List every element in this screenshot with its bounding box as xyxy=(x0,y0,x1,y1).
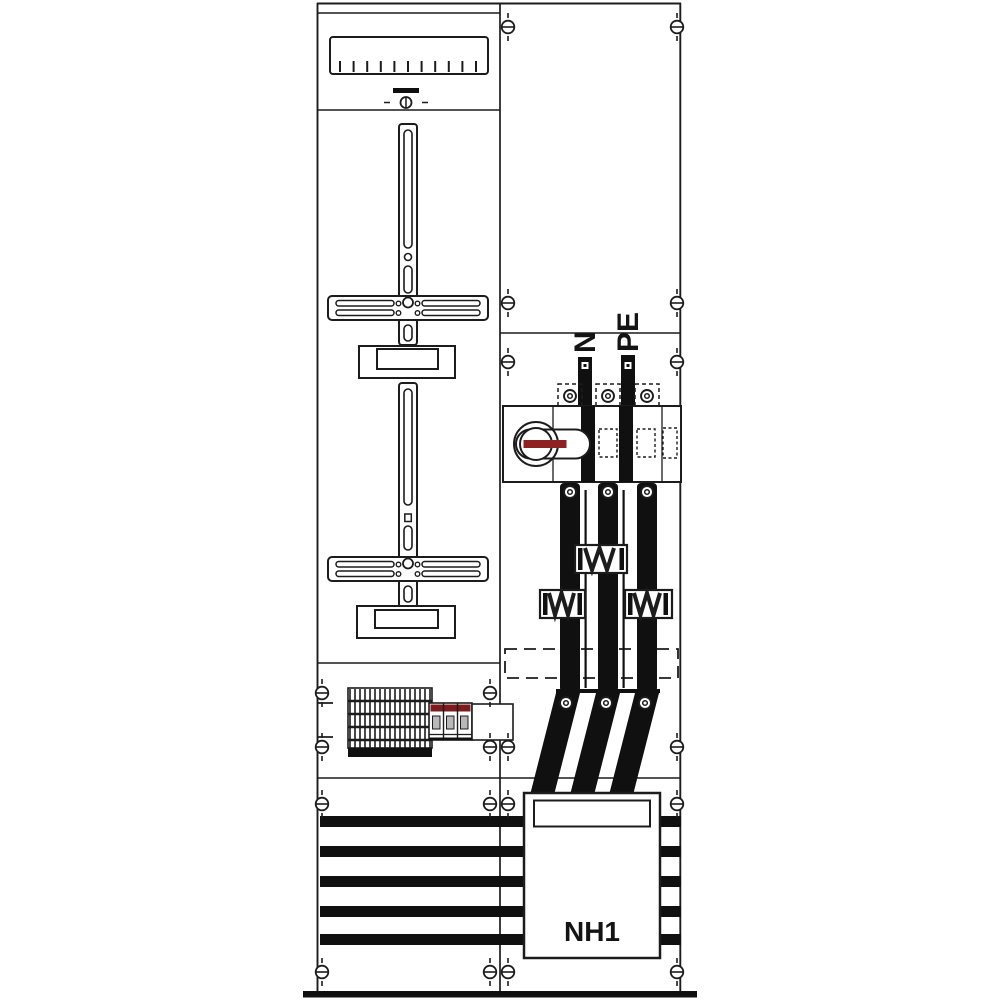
slanted-busbar-2 xyxy=(570,693,620,795)
left-meter-field xyxy=(328,37,513,757)
screw-icon xyxy=(502,958,515,986)
distribution-busbars xyxy=(530,483,660,795)
fixing-screw-symbol xyxy=(384,88,428,109)
rail-end-plate xyxy=(472,704,513,740)
flexible-connector-icon-left xyxy=(540,590,585,618)
top-din-rail xyxy=(330,37,488,74)
screw-icon xyxy=(671,289,684,317)
handle-red-grip xyxy=(524,440,567,448)
meter-terminal-cover-1 xyxy=(359,346,455,378)
meter-cabinet-diagram: N PE xyxy=(0,0,1000,1000)
screw-icon xyxy=(502,13,515,41)
screw-icon xyxy=(484,958,497,986)
nh1-fuse-switch: NH1 xyxy=(524,793,660,958)
screw-icon xyxy=(502,348,515,376)
screw-icon xyxy=(484,679,497,707)
cabinet-base-rail xyxy=(303,991,697,998)
screw-icon xyxy=(671,790,684,818)
nh1-label-window xyxy=(534,801,650,827)
terminal-block-strip xyxy=(348,688,432,757)
flexible-connector-icon-right xyxy=(625,590,672,618)
breaker-red-strip xyxy=(431,705,471,712)
nh1-label: NH1 xyxy=(564,916,620,947)
busbar-clamp-tabs-top xyxy=(558,384,659,406)
diagram-canvas: N PE xyxy=(0,0,1000,1000)
busbar-label-pe: PE xyxy=(612,312,645,352)
main-switch xyxy=(503,406,681,482)
busbar-label-n: N xyxy=(569,331,602,353)
meter-terminal-cover-2 xyxy=(357,606,455,638)
flexible-connector-icon-middle xyxy=(575,545,627,573)
screw-icon xyxy=(671,958,684,986)
screw-icon xyxy=(671,13,684,41)
meter-mounting-cross-2 xyxy=(328,383,488,638)
circuit-breaker-group xyxy=(429,703,513,740)
screw-icon xyxy=(484,790,497,818)
screw-icon xyxy=(671,348,684,376)
screw-icon xyxy=(671,733,684,761)
screw-icon xyxy=(502,790,515,818)
slanted-busbar-1 xyxy=(530,693,580,795)
screw-icon xyxy=(502,289,515,317)
right-switch-field: N PE xyxy=(503,312,681,795)
meter-mounting-cross-1 xyxy=(328,124,488,378)
slanted-busbar-3 xyxy=(609,693,659,795)
